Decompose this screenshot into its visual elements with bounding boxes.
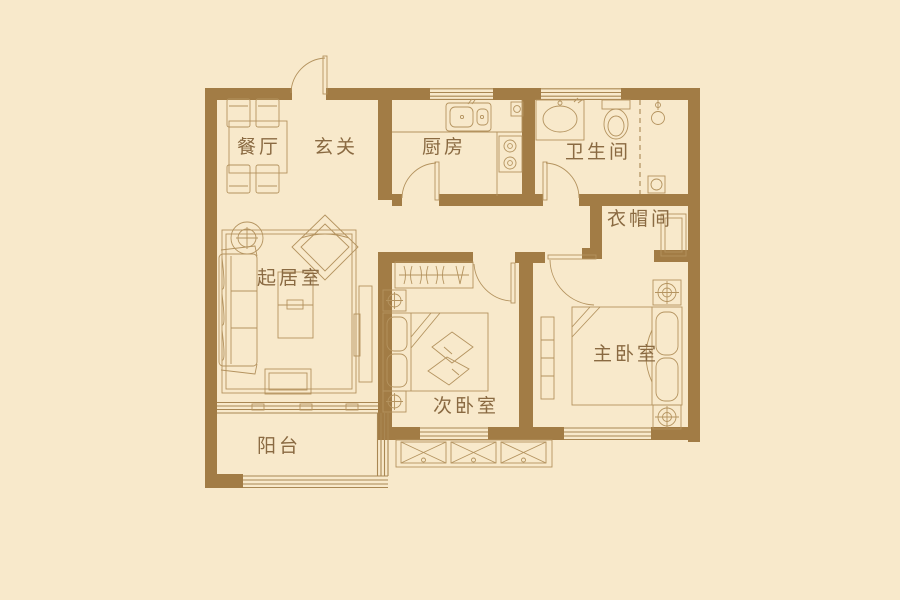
- sliding-door-balcony: [217, 403, 378, 414]
- bed-icon: [383, 313, 488, 391]
- window-bathroom: [541, 88, 621, 100]
- entry-door: [291, 56, 327, 94]
- window-kitchen: [430, 88, 493, 100]
- room-label-master-bedroom: 主卧室: [593, 343, 659, 365]
- wall-kitchen-bath: [522, 96, 535, 196]
- wall-corridor-a: [392, 194, 402, 206]
- ottoman-icon: [265, 369, 311, 394]
- floorplan-canvas: 餐厅 玄关 厨房 卫生间 衣帽间 起居室 次卧室 主卧室 阳台: [0, 0, 900, 600]
- wall-cloakroom-nub: [582, 248, 602, 259]
- window-second-bedroom: [420, 428, 488, 440]
- ac-platform: [396, 440, 552, 467]
- shower-icon: [652, 100, 665, 125]
- room-label-kitchen: 厨房: [422, 136, 466, 158]
- floor-drain-icon: [648, 176, 665, 193]
- wall-balcony-corner: [205, 474, 243, 488]
- room-label-balcony: 阳台: [257, 435, 301, 457]
- kitchen-door: [402, 162, 439, 200]
- stove-icon: [497, 132, 522, 196]
- sofa-icon: [219, 246, 257, 374]
- ac-unit-icon: [501, 442, 546, 463]
- second-bedroom-furniture: [383, 262, 488, 412]
- wall-foyer-kitchen: [378, 88, 392, 200]
- washbasin-icon: [536, 98, 584, 140]
- wall-bed2-right: [519, 252, 533, 432]
- wardrobe-icon: [395, 262, 473, 288]
- wall-bed2-top-a: [378, 252, 473, 263]
- room-label-cloakroom: 衣帽间: [607, 208, 673, 230]
- ac-unit-icon: [401, 442, 446, 463]
- sink-icon: [446, 99, 491, 131]
- room-label-dining: 餐厅: [237, 136, 281, 158]
- tv-cabinet-icon: [354, 286, 372, 382]
- wall-right: [688, 88, 700, 442]
- gas-meter-icon: [511, 102, 523, 116]
- window-master-bedroom: [564, 428, 651, 440]
- room-label-second-bedroom: 次卧室: [433, 395, 499, 417]
- wall-corridor-b: [439, 194, 543, 206]
- dresser-icon: [541, 317, 554, 399]
- floorplan-drawing: 餐厅 玄关 厨房 卫生间 衣帽间 起居室 次卧室 主卧室 阳台: [0, 0, 900, 600]
- room-label-foyer: 玄关: [314, 136, 358, 158]
- second-bedroom-door: [474, 263, 515, 303]
- nightstand-icon: [653, 280, 681, 305]
- nightstand-icon: [653, 405, 681, 429]
- room-label-living: 起居室: [257, 267, 323, 289]
- room-label-bathroom: 卫生间: [565, 141, 631, 163]
- wall-top-a: [205, 88, 292, 100]
- toilet-icon: [602, 100, 630, 139]
- wall-corridor-c: [579, 194, 700, 206]
- master-bedroom-door: [548, 255, 596, 305]
- wall-cloakroom-left: [590, 206, 602, 250]
- room-labels: 餐厅 玄关 厨房 卫生间 衣帽间 起居室 次卧室 主卧室 阳台: [237, 136, 673, 457]
- wall-top-kitchen-a: [392, 88, 430, 100]
- plant-icon: [231, 222, 263, 254]
- wall-left: [205, 88, 217, 488]
- ac-unit-icon: [451, 442, 496, 463]
- wall-bottom-b: [488, 427, 564, 440]
- bathroom-door: [543, 162, 579, 200]
- living-room-furniture: [219, 215, 372, 394]
